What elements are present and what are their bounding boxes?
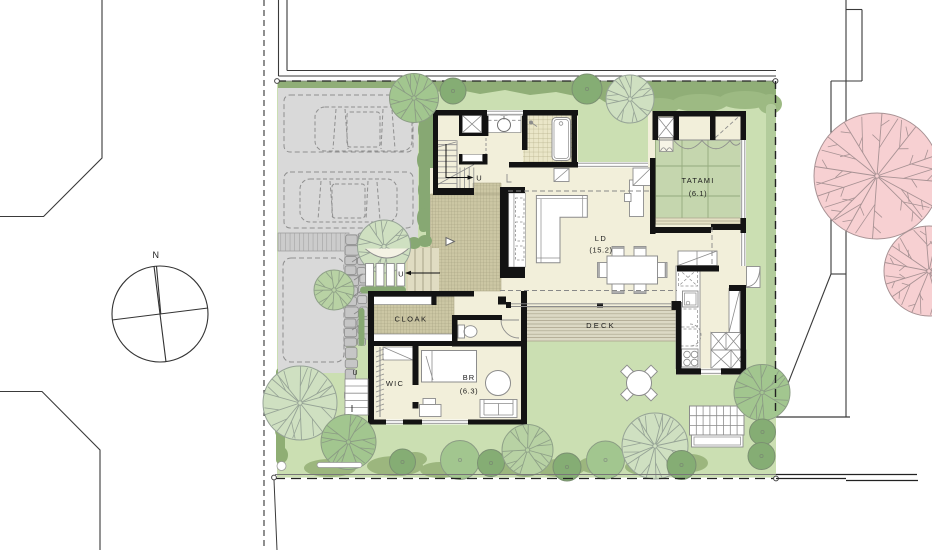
svg-text:(6.3): (6.3) [460, 387, 478, 396]
svg-text:LD: LD [595, 234, 608, 243]
svg-text:N: N [153, 250, 160, 260]
svg-text:TATAMI: TATAMI [681, 176, 714, 185]
svg-text:(15.2): (15.2) [589, 246, 612, 255]
svg-text:U: U [476, 174, 481, 183]
svg-text:(6.1): (6.1) [689, 189, 707, 198]
svg-text:DECK: DECK [586, 321, 616, 330]
svg-text:U: U [352, 370, 357, 377]
svg-text:WIC: WIC [386, 379, 404, 388]
svg-text:CLOAK: CLOAK [395, 315, 428, 324]
svg-text:U: U [398, 270, 403, 279]
svg-text:BR: BR [463, 373, 475, 382]
